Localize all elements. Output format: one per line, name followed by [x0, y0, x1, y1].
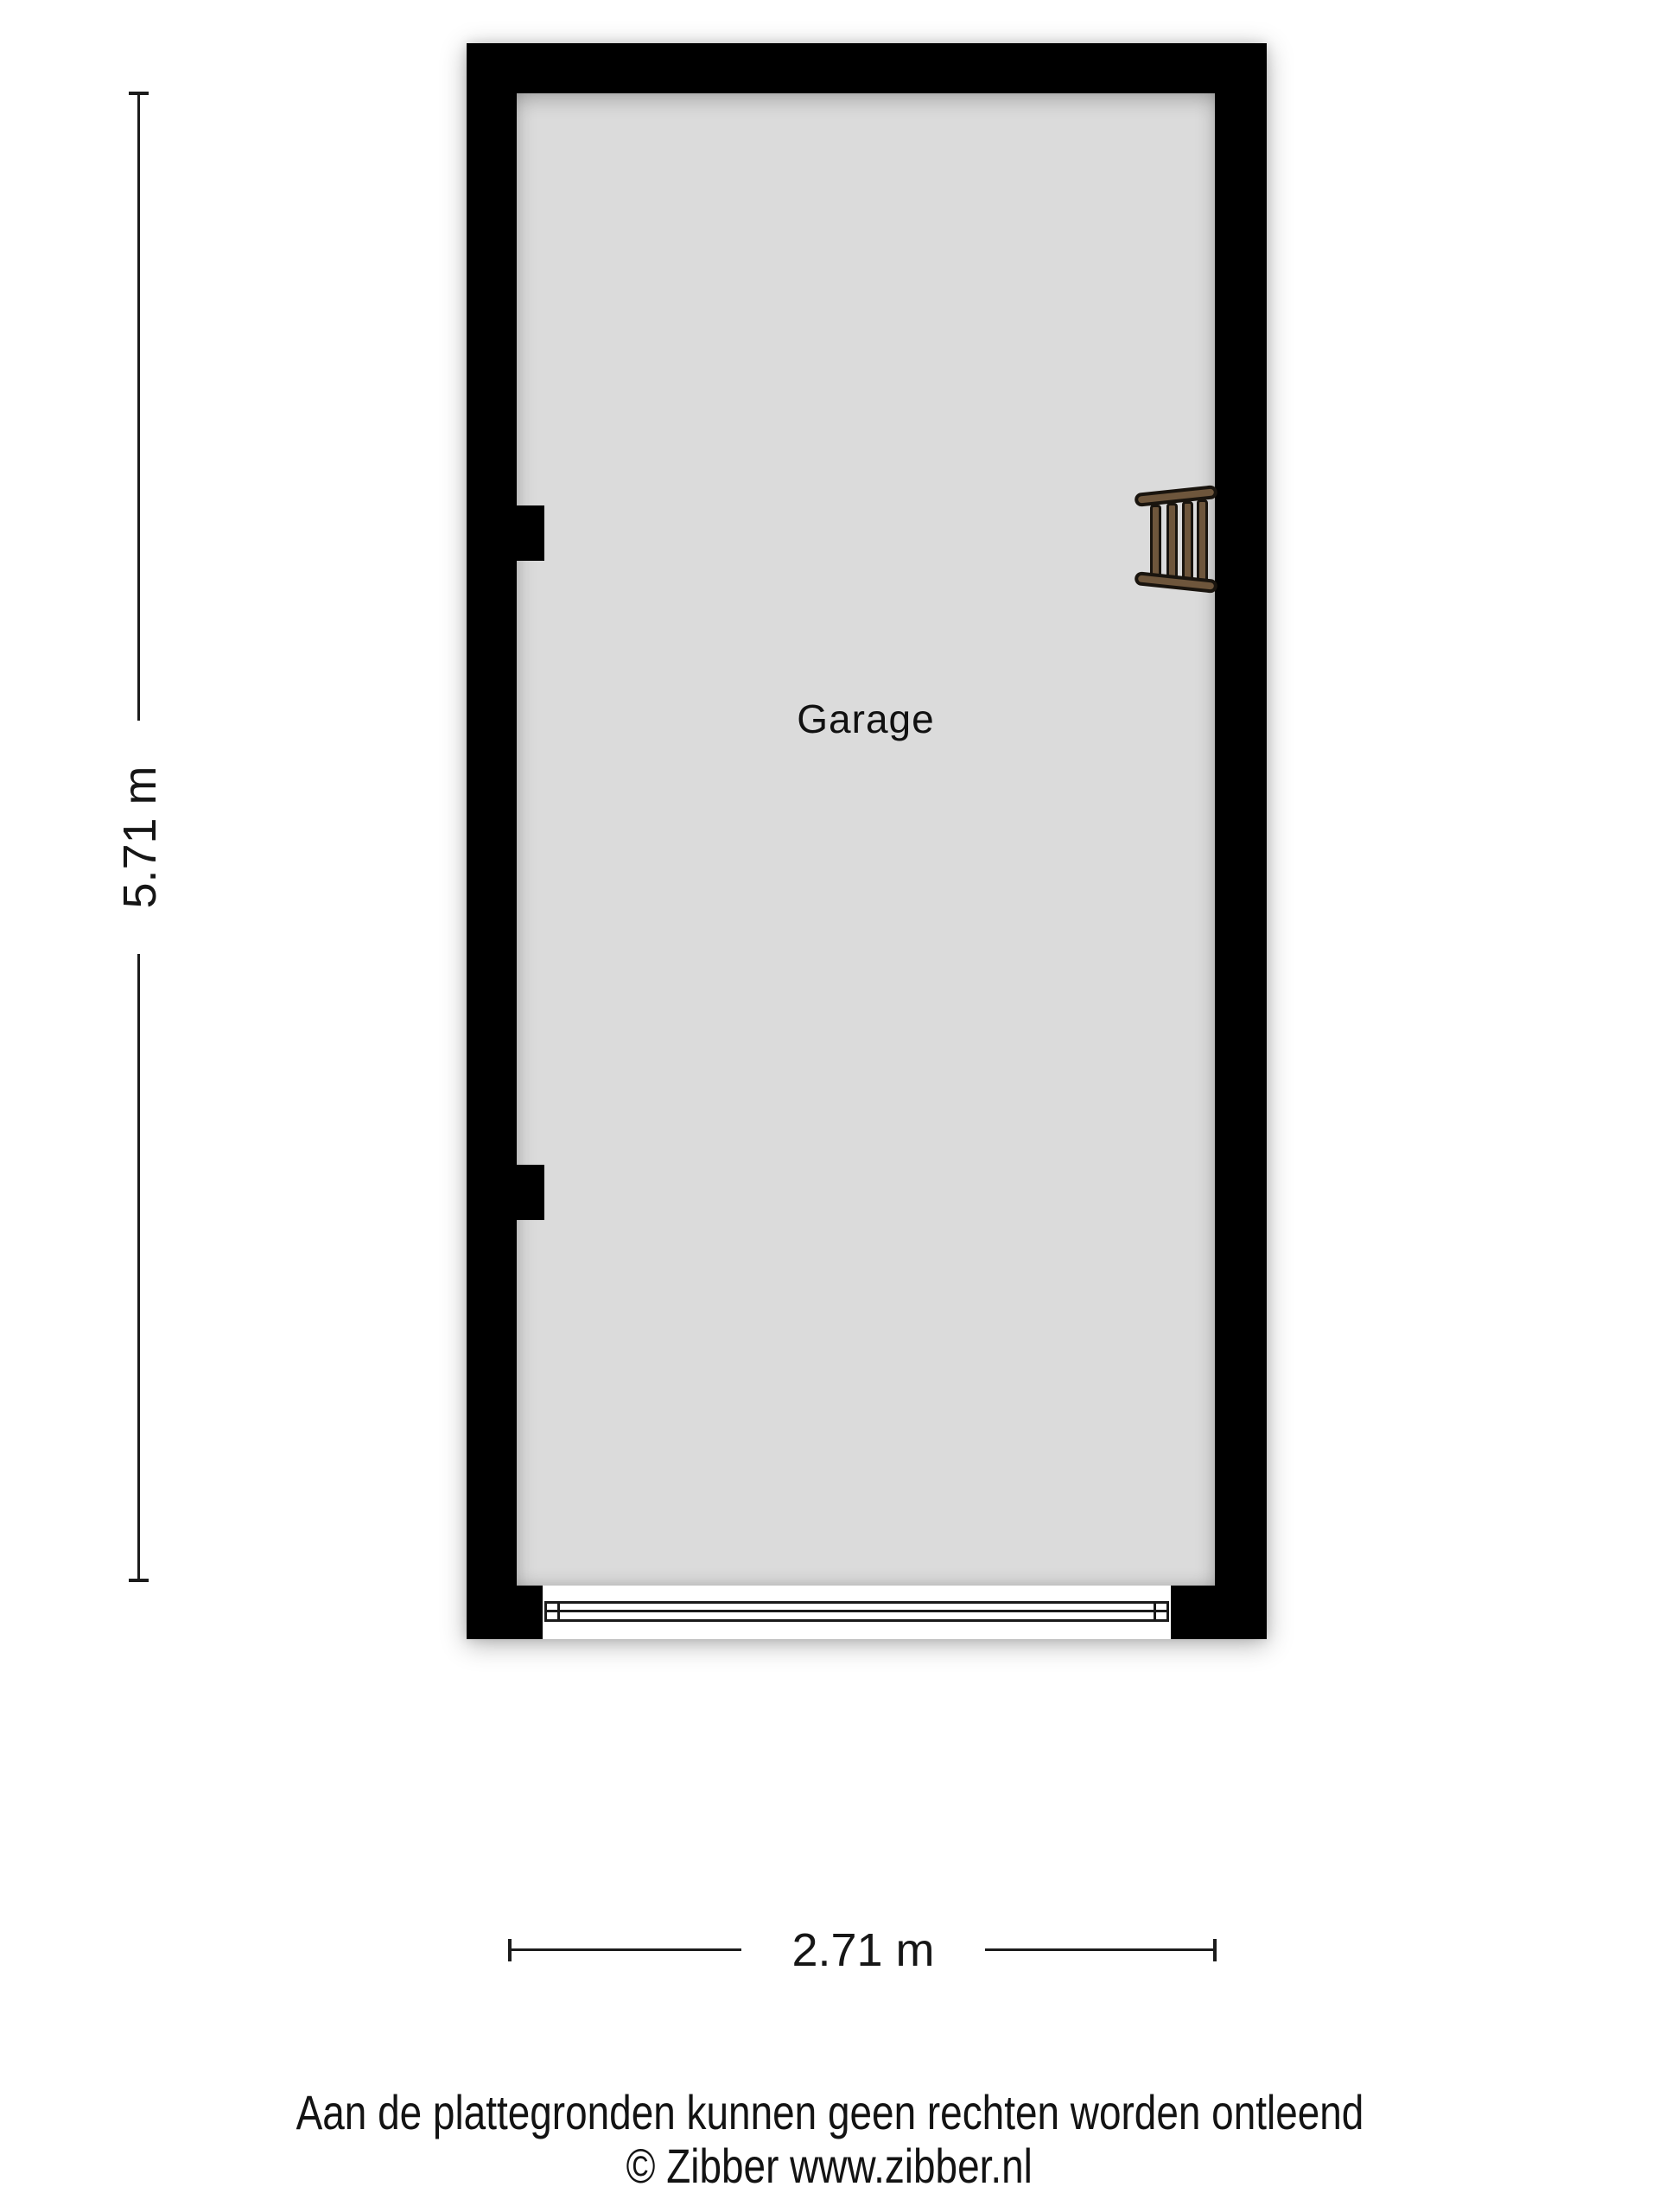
horizontal-dimension-label: 2.71 m — [791, 1923, 934, 1977]
wall-top — [467, 43, 1267, 93]
garage-floorplan: Garage — [467, 43, 1267, 1639]
footer-copyright-line: © Zibber www.zibber.nl — [0, 2138, 1659, 2194]
wall-corner-block-right — [1171, 1586, 1267, 1639]
wall-right — [1215, 43, 1267, 1639]
garage-floor — [517, 93, 1215, 1586]
wall-corner-block-left — [467, 1586, 543, 1639]
footer-copyright-text: © Zibber www.zibber.nl — [626, 2138, 1033, 2194]
ladder-rung — [1182, 501, 1193, 581]
wall-stub-upper — [517, 505, 544, 561]
garage-door-left-cap — [557, 1604, 560, 1619]
horizontal-dimension-left-tick — [508, 1939, 512, 1961]
garage-door — [544, 1601, 1169, 1622]
horizontal-dimension-line-left-segment — [510, 1948, 741, 1951]
ladder-rung — [1150, 505, 1161, 577]
horizontal-dimension-line-right-segment — [985, 1948, 1215, 1951]
wall-left — [467, 43, 517, 1639]
floorplan-page: { "floorplan": { "room": { "label": "Gar… — [0, 0, 1659, 2212]
vertical-dimension-line-upper-segment — [137, 93, 140, 721]
vertical-dimension-label: 5.71 m — [113, 766, 167, 908]
ladder-rung — [1197, 499, 1208, 582]
wall-stub-lower — [517, 1165, 544, 1220]
vertical-dimension-top-tick — [129, 92, 149, 95]
horizontal-dimension-right-tick — [1213, 1939, 1217, 1961]
ladder-rung — [1166, 503, 1178, 579]
garage-door-midline — [547, 1610, 1166, 1612]
vertical-dimension-line-lower-segment — [137, 954, 140, 1581]
garage-door-right-cap — [1154, 1604, 1156, 1619]
footer-disclaimer-line: Aan de plattegronden kunnen geen rechten… — [0, 2084, 1659, 2140]
footer-disclaimer-text: Aan de plattegronden kunnen geen rechten… — [296, 2084, 1363, 2140]
ladder-icon — [1135, 482, 1217, 596]
vertical-dimension-bottom-tick — [129, 1579, 149, 1582]
